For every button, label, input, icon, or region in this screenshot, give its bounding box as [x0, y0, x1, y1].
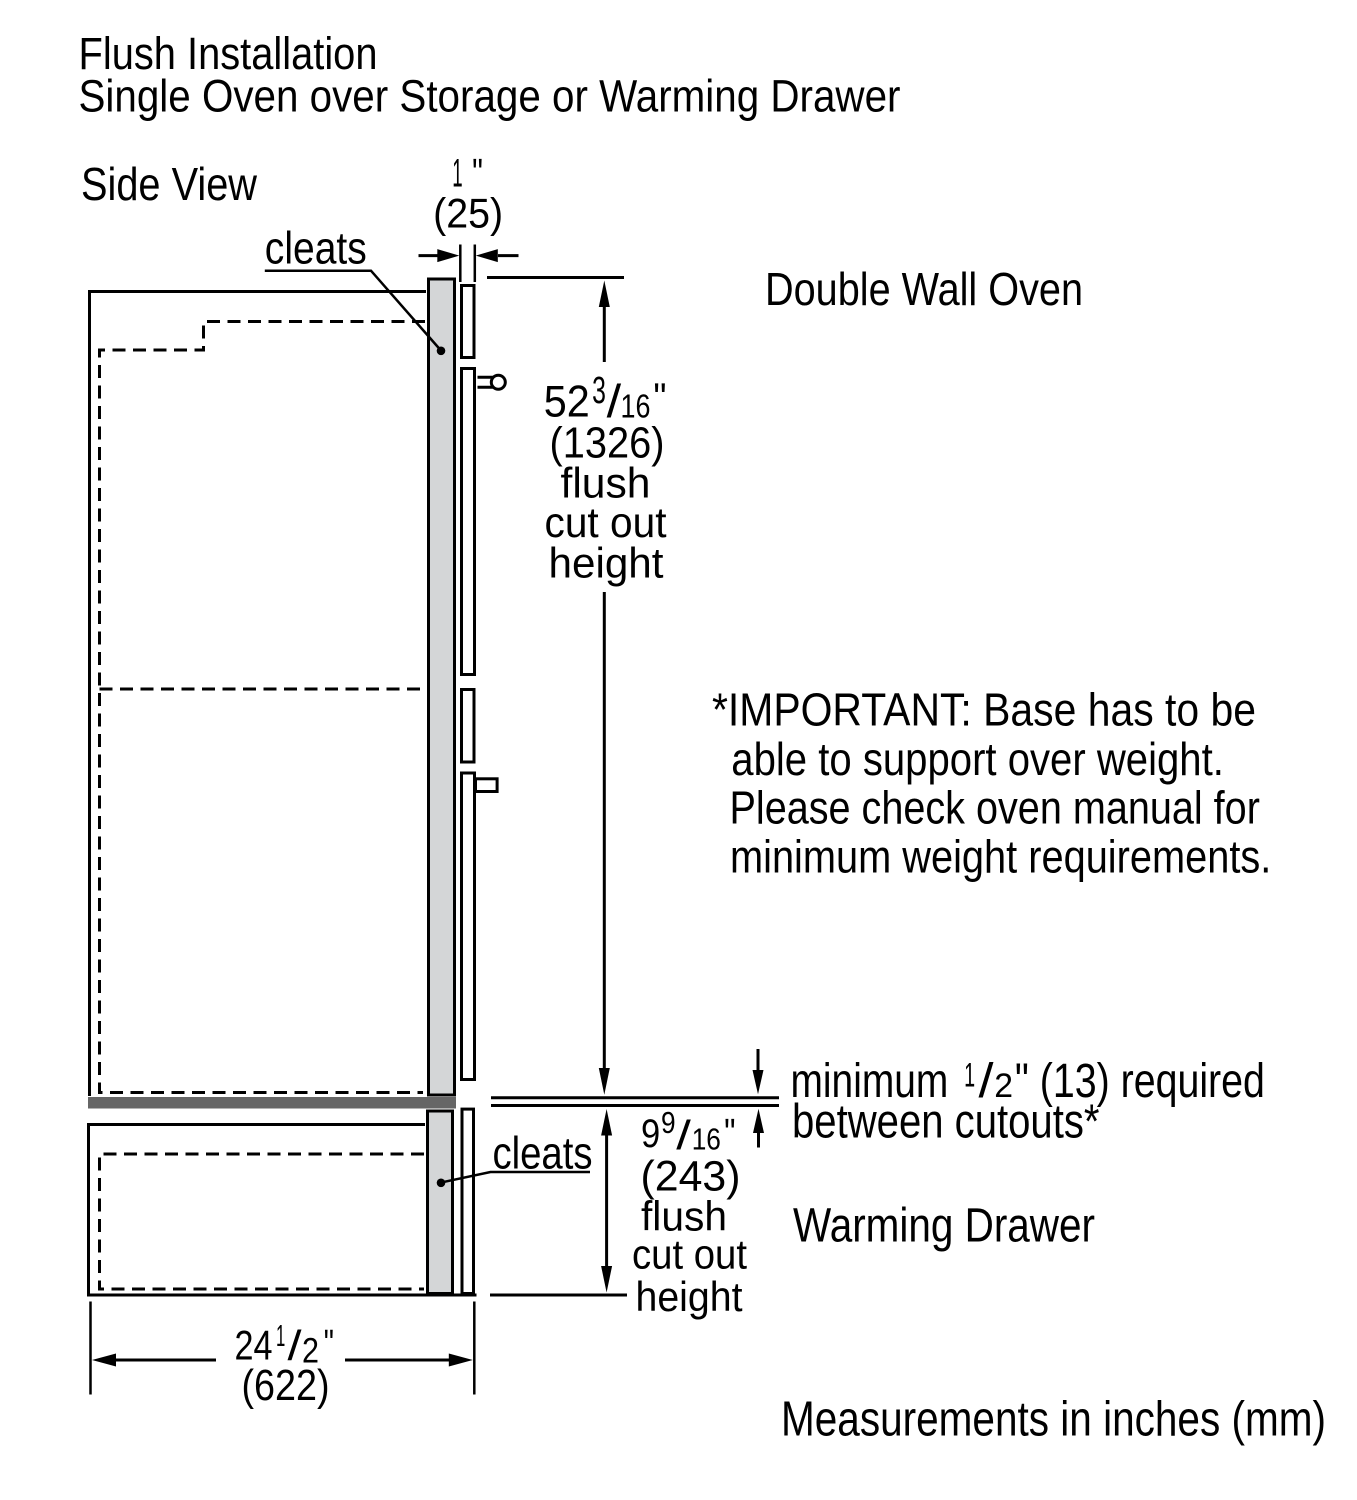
svg-text:(25): (25): [433, 190, 503, 237]
svg-text:1: 1: [276, 1318, 285, 1353]
svg-text:(622): (622): [242, 1361, 330, 1410]
svg-text:cut out: cut out: [632, 1231, 747, 1278]
svg-text:": ": [653, 376, 666, 420]
svg-text:9: 9: [661, 1105, 676, 1140]
svg-text:height: height: [549, 540, 664, 588]
svg-text:Single Oven over Storage or Wa: Single Oven over Storage or Warming Draw…: [79, 70, 901, 121]
svg-text:Warming Drawer: Warming Drawer: [793, 1199, 1095, 1253]
svg-text:able to support over weight.: able to support over weight.: [731, 733, 1224, 785]
svg-text:Measurements in inches (mm): Measurements in inches (mm): [781, 1392, 1326, 1446]
svg-text:Please check oven manual for: Please check oven manual for: [730, 782, 1260, 834]
svg-text:minimum weight requirements.: minimum weight requirements.: [730, 831, 1271, 883]
svg-text:9: 9: [641, 1112, 660, 1156]
svg-text:": ": [324, 1323, 334, 1365]
svg-text:cleats: cleats: [265, 223, 367, 274]
svg-text:between cutouts*: between cutouts*: [792, 1096, 1100, 1149]
svg-text:Side View: Side View: [81, 158, 258, 210]
svg-text:Double Wall Oven: Double Wall Oven: [765, 263, 1083, 315]
svg-text:16: 16: [692, 1122, 721, 1157]
svg-text:height: height: [636, 1273, 743, 1320]
svg-text:": ": [724, 1112, 735, 1156]
svg-text:*IMPORTANT: Base has to be: *IMPORTANT: Base has to be: [712, 684, 1256, 736]
svg-text:1: 1: [964, 1057, 975, 1095]
svg-text:/: /: [676, 1112, 691, 1158]
svg-text:3: 3: [592, 370, 606, 412]
